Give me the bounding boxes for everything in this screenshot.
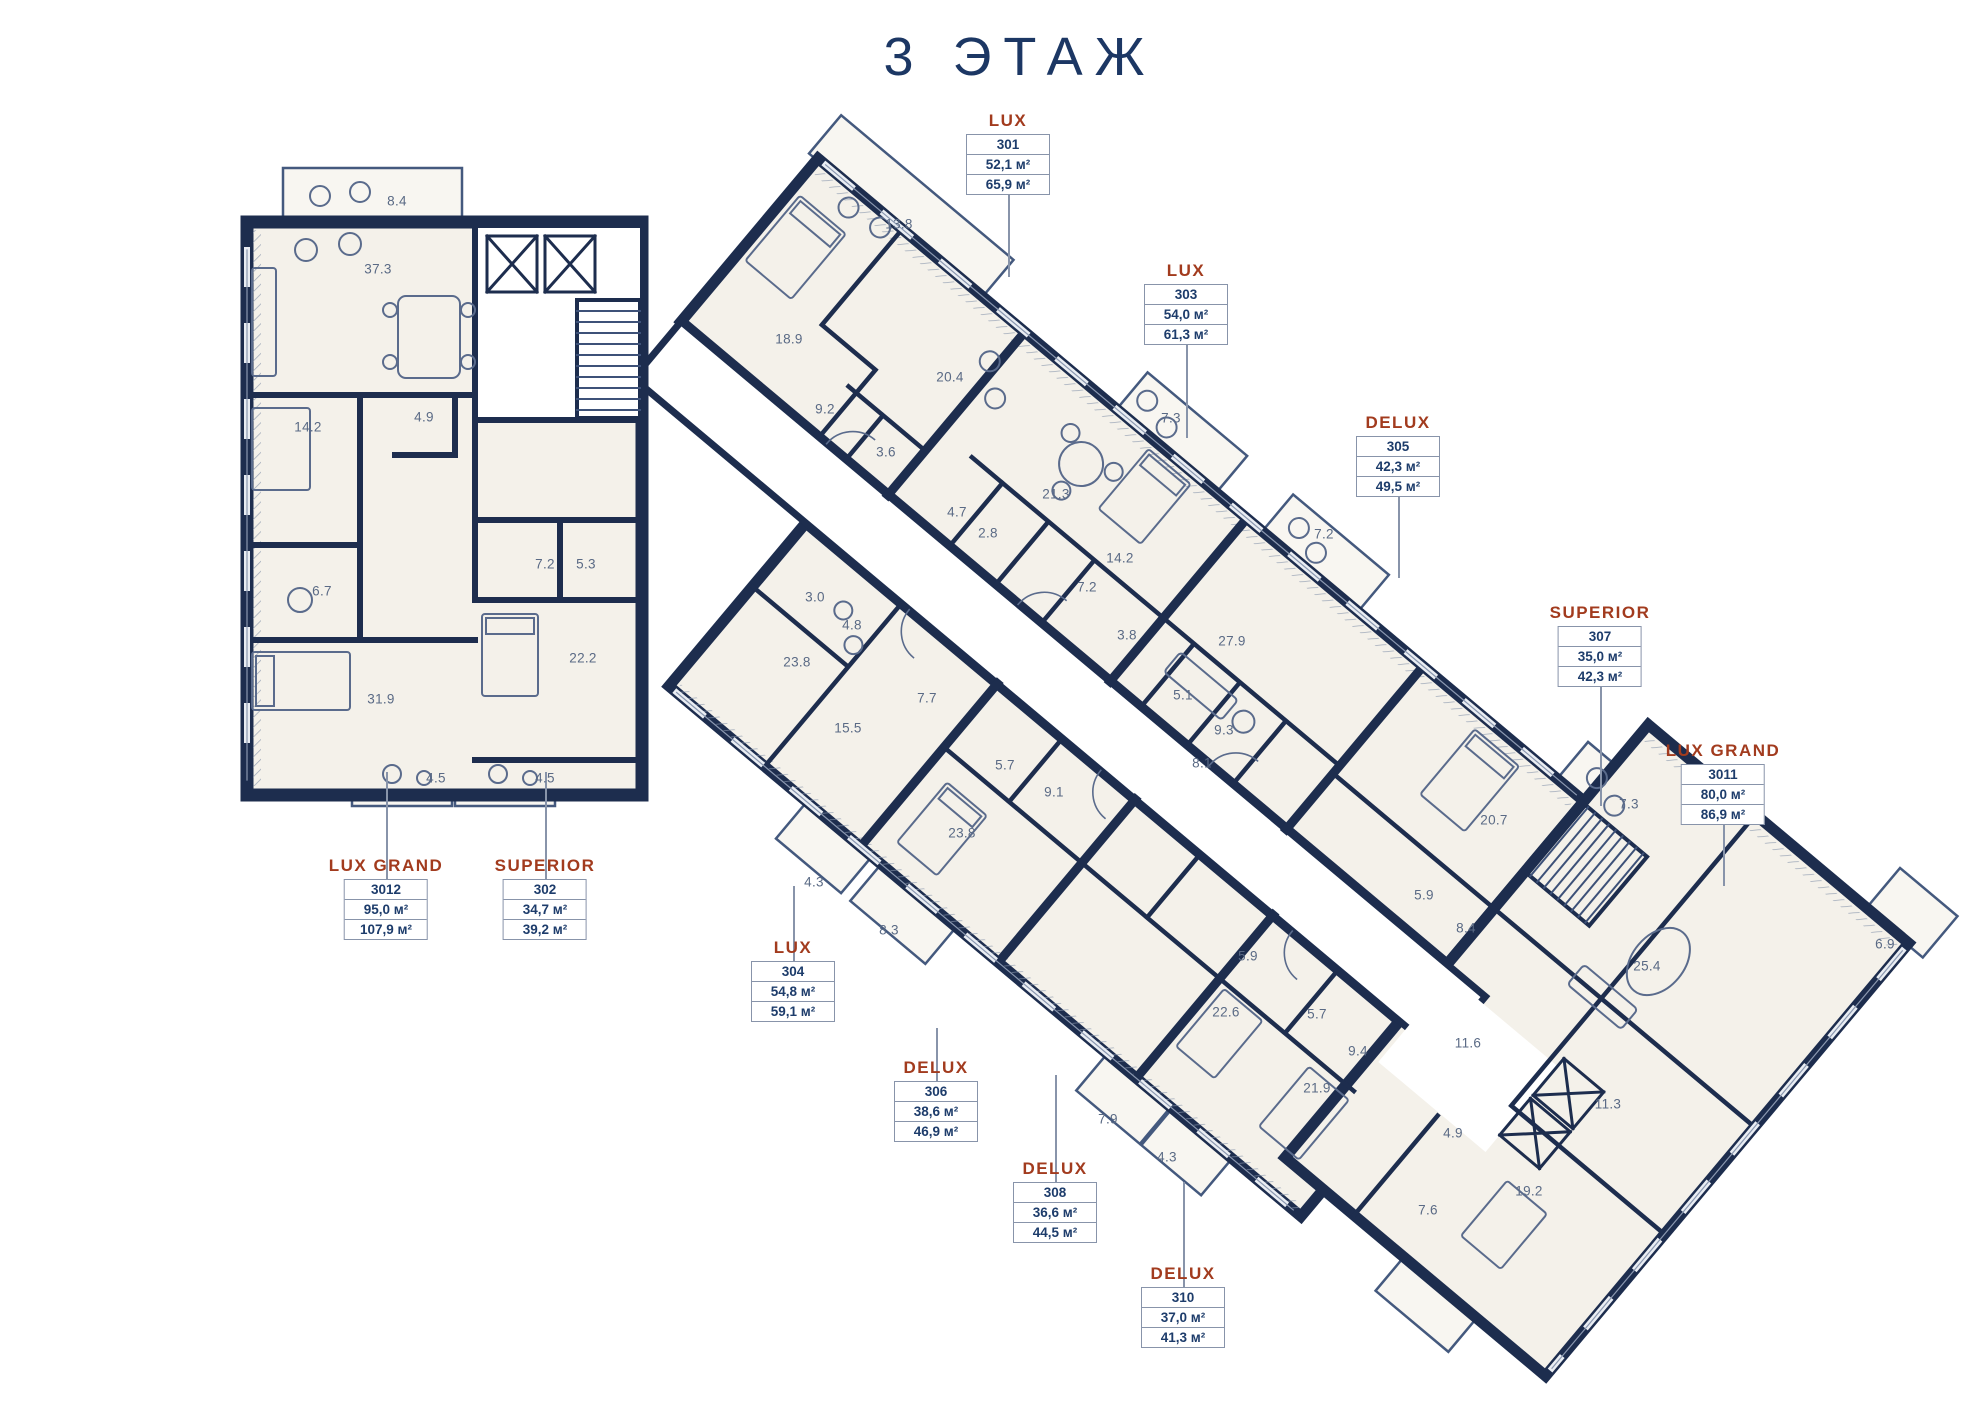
unit-category-label: SUPERIOR: [495, 856, 596, 876]
floor-plan-drawing: [0, 0, 1980, 1414]
room-area-label: 7.2: [535, 557, 555, 572]
room-area-label: 8.4: [1456, 921, 1476, 936]
unit-category-label: SUPERIOR: [1550, 603, 1651, 623]
room-area-label: 19.2: [1515, 1184, 1542, 1199]
left-block: [247, 168, 642, 806]
unit-number: 304: [752, 962, 834, 981]
unit-area-large: 107,9 м²: [345, 919, 427, 939]
room-area-label: 5.1: [1173, 688, 1193, 703]
room-area-label: 4.3: [1157, 1150, 1177, 1165]
unit-label[interactable]: DELUX 305 42,3 м² 49,5 м²: [1356, 413, 1440, 497]
unit-label[interactable]: LUX GRAND 3011 80,0 м² 86,9 м²: [1666, 741, 1781, 825]
unit-number: 306: [895, 1082, 977, 1101]
room-area-label: 14.2: [294, 420, 321, 435]
unit-label[interactable]: DELUX 310 37,0 м² 41,3 м²: [1141, 1264, 1225, 1348]
unit-area-small: 54,0 м²: [1145, 304, 1227, 324]
unit-area-large: 44,5 м²: [1014, 1222, 1096, 1242]
unit-info-box[interactable]: 304 54,8 м² 59,1 м²: [751, 961, 835, 1022]
unit-leader-line: [1723, 818, 1725, 886]
unit-label[interactable]: SUPERIOR 302 34,7 м² 39,2 м²: [495, 856, 596, 940]
room-area-label: 6.9: [1875, 937, 1895, 952]
room-area-label: 23.8: [948, 826, 975, 841]
unit-label[interactable]: DELUX 308 36,6 м² 44,5 м²: [1013, 1159, 1097, 1243]
room-area-label: 5.9: [1414, 888, 1434, 903]
unit-number: 302: [504, 880, 586, 899]
room-area-label: 8.1: [1192, 756, 1212, 771]
room-area-label: 4.7: [947, 505, 967, 520]
room-area-label: 18.9: [775, 332, 802, 347]
room-area-label: 4.3: [804, 875, 824, 890]
unit-label[interactable]: LUX 301 52,1 м² 65,9 м²: [966, 111, 1050, 195]
room-area-label: 8.3: [879, 923, 899, 938]
floorplan-page: 3 ЭТАЖ const data = JSON.parse(document.…: [0, 0, 1980, 1414]
unit-info-box[interactable]: 302 34,7 м² 39,2 м²: [503, 879, 587, 940]
room-area-label: 7.7: [917, 691, 937, 706]
diagonal-wing: [458, 36, 1957, 1414]
room-area-label: 23.8: [783, 655, 810, 670]
unit-area-large: 39,2 м²: [504, 919, 586, 939]
unit-leader-line: [1186, 338, 1188, 438]
unit-category-label: LUX GRAND: [1666, 741, 1781, 761]
room-area-label: 15.5: [834, 721, 861, 736]
room-area-label: 9.1: [1044, 785, 1064, 800]
unit-area-large: 61,3 м²: [1145, 324, 1227, 344]
room-area-label: 3.0: [805, 590, 825, 605]
room-area-label: 7.2: [1077, 580, 1097, 595]
room-area-label: 4.8: [842, 618, 862, 633]
page-title: 3 ЭТАЖ: [30, 26, 1980, 88]
unit-info-box[interactable]: 306 38,6 м² 46,9 м²: [894, 1081, 978, 1142]
unit-info-box[interactable]: 301 52,1 м² 65,9 м²: [966, 134, 1050, 195]
unit-category-label: DELUX: [1141, 1264, 1225, 1284]
room-area-label: 4.9: [1443, 1126, 1463, 1141]
unit-area-large: 42,3 м²: [1559, 666, 1641, 686]
unit-leader-line: [1398, 490, 1400, 578]
unit-label[interactable]: LUX 304 54,8 м² 59,1 м²: [751, 938, 835, 1022]
unit-label[interactable]: LUX 303 54,0 м² 61,3 м²: [1144, 261, 1228, 345]
room-area-label: 11.3: [1595, 1097, 1621, 1112]
room-area-label: 5.9: [1238, 949, 1258, 964]
unit-area-small: 37,0 м²: [1142, 1307, 1224, 1327]
unit-info-box[interactable]: 310 37,0 м² 41,3 м²: [1141, 1287, 1225, 1348]
room-area-label: 14.2: [1106, 551, 1133, 566]
room-area-label: 31.9: [367, 692, 394, 707]
unit-area-small: 80,0 м²: [1682, 784, 1764, 804]
room-area-label: 11.6: [1455, 1036, 1481, 1051]
unit-area-small: 34,7 м²: [504, 899, 586, 919]
room-area-label: 27.9: [1218, 634, 1245, 649]
unit-label[interactable]: DELUX 306 38,6 м² 46,9 м²: [894, 1058, 978, 1142]
unit-category-label: DELUX: [894, 1058, 978, 1078]
unit-info-box[interactable]: 307 35,0 м² 42,3 м²: [1558, 626, 1642, 687]
unit-category-label: DELUX: [1013, 1159, 1097, 1179]
room-area-label: 7.3: [1161, 411, 1181, 426]
room-area-label: 5.3: [576, 557, 596, 572]
unit-area-small: 38,6 м²: [895, 1101, 977, 1121]
unit-leader-line: [1600, 680, 1602, 806]
unit-category-label: LUX: [966, 111, 1050, 131]
unit-category-label: LUX GRAND: [329, 856, 444, 876]
room-area-label: 4.9: [414, 410, 434, 425]
room-area-label: 7.3: [1619, 797, 1639, 812]
room-area-label: 20.7: [1480, 813, 1507, 828]
room-area-label: 37.3: [364, 262, 391, 277]
room-area-label: 21.3: [1042, 487, 1069, 502]
room-area-label: 9.2: [815, 402, 835, 417]
unit-area-small: 95,0 м²: [345, 899, 427, 919]
unit-area-small: 52,1 м²: [967, 154, 1049, 174]
unit-label[interactable]: SUPERIOR 307 35,0 м² 42,3 м²: [1550, 603, 1651, 687]
room-area-label: 3.8: [1117, 628, 1137, 643]
unit-info-box[interactable]: 3012 95,0 м² 107,9 м²: [344, 879, 428, 940]
unit-category-label: LUX: [1144, 261, 1228, 281]
unit-leader-line: [1008, 188, 1010, 277]
unit-number: 305: [1357, 437, 1439, 456]
unit-area-large: 49,5 м²: [1357, 476, 1439, 496]
unit-number: 301: [967, 135, 1049, 154]
unit-category-label: DELUX: [1356, 413, 1440, 433]
room-area-label: 9.4: [1348, 1044, 1368, 1059]
unit-info-box[interactable]: 303 54,0 м² 61,3 м²: [1144, 284, 1228, 345]
room-area-label: 13.8: [885, 217, 912, 232]
room-area-label: 6.7: [312, 584, 332, 599]
room-area-label: 20.4: [936, 370, 963, 385]
room-area-label: 4.5: [426, 771, 446, 786]
room-area-label: 5.7: [1307, 1007, 1327, 1022]
room-area-label: 9.3: [1214, 723, 1234, 738]
unit-area-large: 59,1 м²: [752, 1001, 834, 1021]
room-area-label: 2.8: [978, 526, 998, 541]
room-area-label: 7.9: [1098, 1112, 1118, 1127]
room-area-label: 8.4: [387, 194, 407, 209]
unit-number: 303: [1145, 285, 1227, 304]
unit-label[interactable]: LUX GRAND 3012 95,0 м² 107,9 м²: [329, 856, 444, 940]
unit-info-box[interactable]: 3011 80,0 м² 86,9 м²: [1681, 764, 1765, 825]
room-area-label: 4.5: [535, 771, 555, 786]
unit-area-small: 35,0 м²: [1559, 646, 1641, 666]
unit-info-box[interactable]: 308 36,6 м² 44,5 м²: [1013, 1182, 1097, 1243]
room-area-label: 25.4: [1633, 959, 1660, 974]
unit-number: 3012: [345, 880, 427, 899]
unit-area-large: 41,3 м²: [1142, 1327, 1224, 1347]
unit-number: 308: [1014, 1183, 1096, 1202]
unit-area-small: 42,3 м²: [1357, 456, 1439, 476]
unit-number: 310: [1142, 1288, 1224, 1307]
unit-area-small: 36,6 м²: [1014, 1202, 1096, 1222]
unit-number: 307: [1559, 627, 1641, 646]
room-area-label: 22.2: [569, 651, 596, 666]
unit-area-large: 65,9 м²: [967, 174, 1049, 194]
unit-area-large: 86,9 м²: [1682, 804, 1764, 824]
unit-info-box[interactable]: 305 42,3 м² 49,5 м²: [1356, 436, 1440, 497]
unit-category-label: LUX: [751, 938, 835, 958]
room-area-label: 21.9: [1303, 1081, 1330, 1096]
room-area-label: 5.7: [995, 758, 1015, 773]
room-area-label: 7.6: [1418, 1203, 1438, 1218]
room-area-label: 22.6: [1212, 1005, 1239, 1020]
unit-area-small: 54,8 м²: [752, 981, 834, 1001]
room-area-label: 3.6: [876, 445, 896, 460]
unit-area-large: 46,9 м²: [895, 1121, 977, 1141]
unit-number: 3011: [1682, 765, 1764, 784]
room-area-label: 7.2: [1314, 527, 1334, 542]
